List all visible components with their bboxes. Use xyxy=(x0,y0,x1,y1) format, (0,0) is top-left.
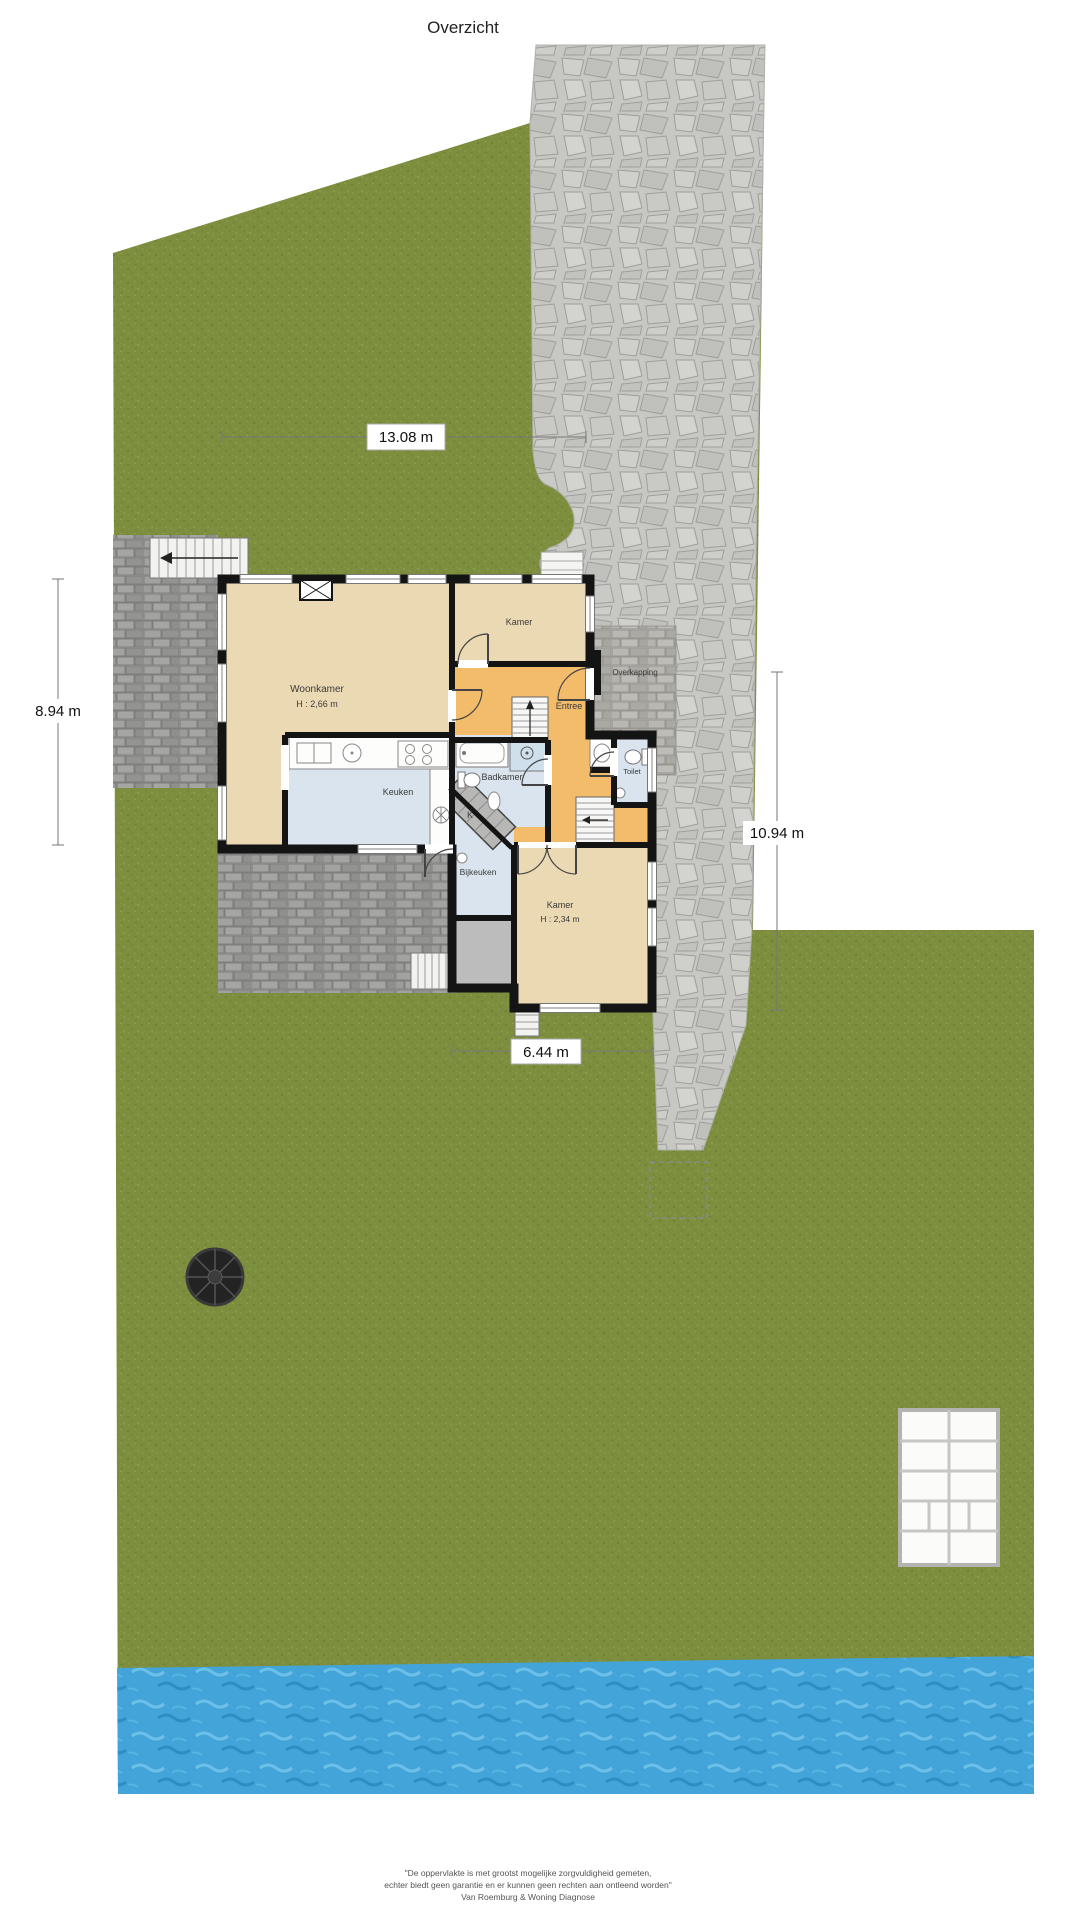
room-height-kamer-onder: H : 2,34 m xyxy=(540,914,579,924)
room-label-entree: Entree xyxy=(556,701,583,711)
room-label-kamer-top: Kamer xyxy=(506,617,533,627)
room-label-kast: K xyxy=(467,810,473,820)
water xyxy=(117,1656,1034,1794)
bijkeuken-fixture xyxy=(457,853,467,863)
disclaimer-line1: "De oppervlakte is met grootst mogelijke… xyxy=(405,1868,652,1878)
stairs-kelder xyxy=(576,797,614,843)
toilet-badkamer-icon xyxy=(458,772,480,788)
page-title: Overzicht xyxy=(427,18,499,37)
dimension-left-value: 8.94 m xyxy=(35,703,81,720)
site-plan: Woonkamer H : 2,66 m Kamer Entree Keuken… xyxy=(0,0,1080,1920)
shower-icon xyxy=(510,739,546,771)
disclaimer-line2: echter biedt geen garantie en er kunnen … xyxy=(384,1880,672,1890)
disclaimer: "De oppervlakte is met grootst mogelijke… xyxy=(384,1868,672,1902)
trampoline xyxy=(187,1249,243,1305)
room-height-woonkamer: H : 2,66 m xyxy=(296,699,338,709)
stairs-exterior-topleft xyxy=(150,538,248,578)
room-berging xyxy=(452,918,514,988)
room-label-woonkamer: Woonkamer xyxy=(290,684,344,695)
stairs-entree xyxy=(512,697,548,740)
room-label-overkapping: Overkapping xyxy=(612,668,657,677)
dimension-top-value: 13.08 m xyxy=(379,429,433,446)
chimney-icon xyxy=(300,580,332,600)
dimension-left: 8.94 m xyxy=(29,579,87,845)
room-label-bijkeuken: Bijkeuken xyxy=(460,867,497,877)
bathtub-icon xyxy=(456,739,508,767)
stove-icon xyxy=(398,741,448,767)
greenhouse-grid xyxy=(900,1410,998,1565)
room-label-toilet: Toilet xyxy=(623,767,641,776)
room-label-kamer-onder: Kamer xyxy=(547,900,574,910)
room-label-badkamer: Badkamer xyxy=(481,772,522,782)
floorplan-page: Woonkamer H : 2,66 m Kamer Entree Keuken… xyxy=(0,0,1080,1920)
dimension-right-value: 10.94 m xyxy=(750,825,804,842)
room-label-keuken: Keuken xyxy=(383,787,414,797)
disclaimer-line3: Van Roemburg & Woning Diagnose xyxy=(461,1892,595,1902)
dimension-bottom-value: 6.44 m xyxy=(523,1044,569,1061)
